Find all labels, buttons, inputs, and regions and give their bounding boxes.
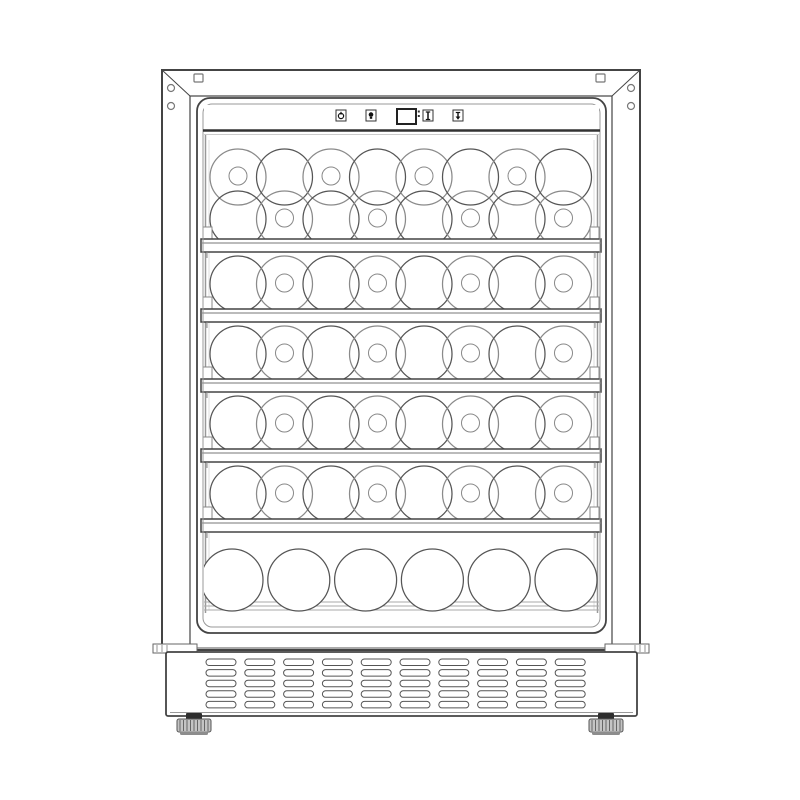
bottle-neck-ring [555,344,573,362]
wine-bottle [335,549,397,611]
vent-slot [284,680,314,687]
vent-slot [516,691,546,698]
shelf-bracket [590,297,599,309]
bottle-neck-ring [462,484,480,502]
bottle-neck-ring [462,274,480,292]
shelf-bracket [203,437,212,449]
vent-slot [361,659,391,666]
vent-slot [206,691,236,698]
vent-slot [439,680,469,687]
vent-slot [245,701,275,708]
wine-bottle [468,549,530,611]
light-icon [369,112,374,117]
vent-slot [555,659,585,666]
vent-slot [555,670,585,677]
vent-slot [322,680,352,687]
shelf-bracket [590,437,599,449]
bottle-neck-ring [415,167,433,185]
vent-slot [245,670,275,677]
bottle-neck-ring [508,167,526,185]
bottle-neck-ring [462,209,480,227]
bottle-neck-ring [369,274,387,292]
bottle-neck-ring [276,484,294,502]
vent-slot [206,659,236,666]
wine-bottle [401,549,463,611]
shelf [201,239,601,252]
vent-slot [400,701,430,708]
vent-slot [361,701,391,708]
vent-slot [400,691,430,698]
base-section [153,644,649,716]
wine-cooler-illustration [0,0,800,800]
control-panel [203,105,600,135]
frame-screw-hole [168,85,175,92]
vent-slot [206,670,236,677]
vent-slot [516,670,546,677]
shelf [201,309,601,322]
shelf-bracket [203,227,212,239]
vent-slot [361,670,391,677]
degree-mark [418,115,420,117]
bottle-neck-ring [555,274,573,292]
bottle-neck-ring [369,414,387,432]
vent-slot [478,659,508,666]
shelf-bracket [590,367,599,379]
shelf [201,379,601,392]
vent-slot [516,659,546,666]
wine-bottle [268,549,330,611]
wine-cooler-drawing [0,0,800,800]
wine-bottle [201,549,263,611]
bottle-neck-ring [369,209,387,227]
vent-slot [284,670,314,677]
vent-slot [245,691,275,698]
bottle-neck-ring [462,344,480,362]
degree-mark [418,111,420,113]
shelf-bracket [590,227,599,239]
bottle-neck-ring [276,209,294,227]
temperature-display [397,109,416,124]
vent-slot [361,691,391,698]
bottle-neck-ring [462,414,480,432]
bottle-neck-ring [555,414,573,432]
vent-slot [400,680,430,687]
frame-screw-hole [628,85,635,92]
vent-slot [516,701,546,708]
vent-slot [478,670,508,677]
vent-slot [439,659,469,666]
vent-slot [555,691,585,698]
vent-slot [361,680,391,687]
vent-slot [322,659,352,666]
vent-slot [284,691,314,698]
vent-slot [439,670,469,677]
vent-slot [478,701,508,708]
vent-slot [284,659,314,666]
vent-slot [206,680,236,687]
frame-mounting-hole [194,74,203,82]
vent-slot [322,691,352,698]
shelf-bracket [203,367,212,379]
power-button [336,110,346,121]
shelf [201,449,601,462]
vent-slot [439,691,469,698]
shelf [201,519,601,532]
frame-screw-hole [628,103,635,110]
frame-screw-hole [168,103,175,110]
shelf-bracket [590,507,599,519]
bottle-neck-ring [276,344,294,362]
vent-slot [245,659,275,666]
wine-bottle [535,549,597,611]
vent-slot [478,680,508,687]
foot-base [180,732,208,736]
vent-slot [284,701,314,708]
bottle-neck-ring [276,414,294,432]
bottle-neck-ring [555,209,573,227]
vent-slot [439,701,469,708]
vent-slot [478,691,508,698]
vent-slot [555,701,585,708]
bottle-neck-ring [369,344,387,362]
bottle-neck-ring [276,274,294,292]
vent-slot [322,701,352,708]
vent-slot [206,701,236,708]
bottle-neck-ring [322,167,340,185]
bottle-neck-ring [229,167,247,185]
foot-base [592,732,620,736]
bottle-neck-ring [369,484,387,502]
vent-slot [555,680,585,687]
vent-slot [322,670,352,677]
light-icon [370,117,372,119]
frame-mounting-hole [596,74,605,82]
shelf-bracket [203,507,212,519]
shelf-bracket [203,297,212,309]
vent-slot [400,670,430,677]
vent-slot [245,680,275,687]
vent-slot [400,659,430,666]
bottle-neck-ring [555,484,573,502]
vent-slot [516,680,546,687]
